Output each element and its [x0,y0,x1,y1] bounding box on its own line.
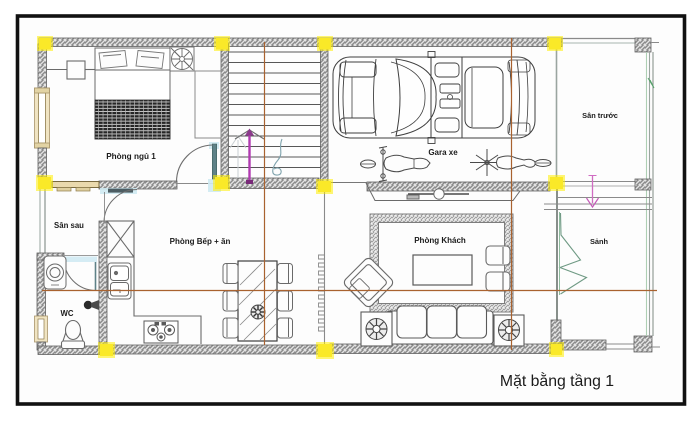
svg-text:Sảnh: Sảnh [590,237,609,246]
svg-text:Gara xe: Gara xe [428,148,458,157]
svg-text:Sân trước: Sân trước [582,111,618,120]
svg-text:Mặt bằng tầng 1: Mặt bằng tầng 1 [500,371,614,390]
svg-text:Phòng Bếp + ăn: Phòng Bếp + ăn [170,237,231,246]
svg-text:WC: WC [61,309,74,318]
svg-text:Phòng ngủ 1: Phòng ngủ 1 [106,152,156,161]
svg-text:Phòng Khách: Phòng Khách [414,236,466,245]
svg-text:Sân sau: Sân sau [54,221,84,230]
